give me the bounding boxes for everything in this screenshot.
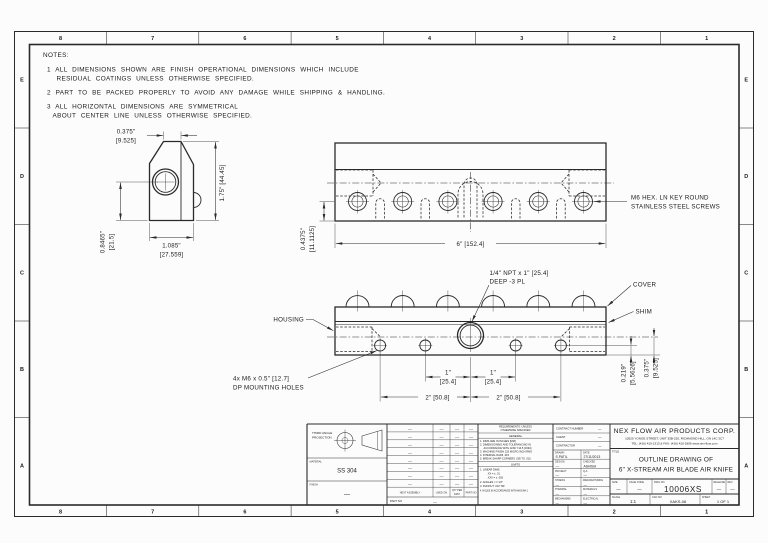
label-housing-group: HOUSING	[273, 317, 333, 331]
manufacturing-label: MANUFACTURING	[583, 479, 603, 482]
zone-row-label: D	[744, 174, 748, 180]
date-label: DATE	[583, 451, 590, 454]
people-grid: DRAWN S.PATIL DATE 27/11/2013 DESIGN — C…	[553, 450, 610, 505]
checked-value: ASHISH	[584, 464, 597, 468]
requirement-item: 3. RUNOUT .010 TIR	[480, 484, 505, 488]
zone-col-label: 6	[243, 36, 246, 42]
material-label: MATERIAL	[310, 461, 323, 464]
requirements-limits-heading: LIMITS	[511, 462, 520, 466]
dim-side-bottom-mm: [27.559]	[160, 252, 184, 259]
npt-inlet	[458, 318, 484, 352]
zone-row-label: C	[744, 271, 748, 277]
drawing-canvas: 8 7 6 5 4 3 2 1 8 7 6 5 4 3 2 1 E D C B …	[0, 0, 768, 543]
company-address: 10520 YONGE STREET, UNIT 35B-220, RICHMO…	[625, 437, 724, 441]
note-3-line-1: 3 ALL HORIZONTAL DIMENSIONS ARE SYMMETRI…	[47, 104, 238, 111]
requirement-item: 1. LINEAR DIMS.	[480, 468, 500, 472]
zone-col-label: 1	[705, 510, 708, 516]
cage-code-label: CAGE CODE	[629, 481, 644, 484]
projection-label-1: THIRD ANGLE	[312, 431, 332, 435]
screw-note-line-1: M6 HEX. LN KEY ROUND	[631, 195, 709, 202]
hidden-center-port	[458, 172, 483, 232]
screw-note: M6 HEX. LN KEY ROUND STAINLESS STEEL SCR…	[594, 195, 720, 211]
dim-a-in: 0.219"	[621, 364, 628, 383]
dim-a-mm: [5.5626]	[630, 361, 637, 385]
note-1-line-1: 1 ALL DIMENSIONS SHOWN ARE FINISH OPERAT…	[47, 67, 359, 74]
sheet-value: 1 OF 1	[717, 499, 730, 504]
dim-side-left-in: 0.8465"	[100, 231, 107, 253]
dim-two-text: 2" [50.8]	[496, 395, 520, 402]
side-view-outline	[150, 142, 194, 221]
mount-note-line-2: DP MOUNTING HOLES	[233, 385, 304, 392]
rev-value: —	[730, 487, 735, 492]
zone-col-label: 8	[59, 510, 62, 516]
requirement-item: 5. BREAK SHARP CORNERS .005 TO .015	[480, 457, 531, 461]
project-label: PROJECT	[555, 470, 567, 473]
front-elevation-view: HOUSING COVER SHIM 1/4" NPT x 1" [25.4] …	[233, 270, 660, 402]
materials-value: —	[584, 492, 588, 496]
application-table: ———————— ———————— ———————— ———————— NEXT…	[387, 424, 478, 504]
mounting-callout: 4x M6 x 0.5" [12.7] DP MOUNTING HOLES	[233, 351, 377, 392]
note-3-line-2: ABOUT CENTER LINE UNLESS OTHERWISE SPECI…	[53, 113, 253, 120]
dim-one-in: 1"	[490, 370, 496, 377]
screw-note-line-2: STAINLESS STEEL SCREWS	[631, 204, 720, 211]
requirements-heading-1: REQUIREMENTS: UNLESS	[499, 425, 532, 429]
zone-col-label: 5	[336, 36, 339, 42]
qa-label: Q.A.	[583, 470, 588, 473]
projection-cell: THIRD ANGLE PROJECTION MATERIAL SS 304 F…	[307, 430, 387, 499]
manufacturing-value: —	[584, 483, 588, 487]
zone-row-label: A	[20, 464, 24, 470]
company-block: NEX FLOW AIR PRODUCTS CORP. 10520 YONGE …	[610, 428, 739, 449]
dim-side-height: 1.75" [44.45]	[183, 142, 226, 221]
dim-side-left-mm: [21.5]	[109, 234, 116, 251]
part-no-value: —	[433, 499, 437, 504]
requirements-general-heading: GENERAL	[509, 434, 523, 438]
requirement-item: 2. DIMENSIONING AND TOLERANCING IN	[480, 443, 531, 447]
dim-screw-offset-in: 0.4375"	[300, 228, 307, 250]
dim-right-small: 0.219" [5.5626] 0.375" [9.525]	[567, 328, 660, 385]
zone-col-label: 3	[520, 510, 523, 516]
drawing-title-line-2: 6" X-STREAM AIR BLADE AIR KNIFE	[619, 467, 733, 474]
application-header-qty-2: ASSY	[454, 493, 461, 496]
contractor-value: —	[598, 444, 602, 448]
application-header-next-assembly: NEXT ASSEMBLY	[400, 492, 421, 495]
checked-label: CHECKED	[583, 461, 595, 464]
requirement-item: 4. HOLES IN ACCORDANCE WITH ANSI B4.1	[480, 490, 529, 493]
contract-number-label: CONTRACT NUMBER	[556, 427, 583, 431]
dim-two-text: 2" [50.8]	[425, 395, 449, 402]
dim-side-top-in: 0.375"	[117, 129, 136, 136]
requirement-item: 1. DIMS ARE IN INCHES [MM]	[480, 439, 516, 443]
side-view-bump	[194, 193, 202, 208]
design-label: DESIGN	[555, 461, 565, 464]
note-1-line-2: RESIDUAL COATINGS UNLESS OTHERWISE SPECI…	[57, 76, 255, 83]
requirement-item: 2. ANGLES = ± 1/2°	[480, 480, 503, 484]
dim-screw-offset: 0.4375" [11.1125]	[300, 202, 334, 253]
application-col3-dashes: ————————	[455, 426, 459, 486]
zone-col-label: 2	[613, 510, 616, 516]
design-value: —	[556, 464, 560, 468]
dwg-no-label: DWG NO	[654, 481, 665, 484]
screw-head-bumps	[346, 291, 595, 312]
screw	[572, 190, 595, 214]
screw	[527, 190, 550, 214]
company-contact: TEL: (416) 410-1313 & FAX: (416) 410-180…	[631, 442, 717, 446]
zone-col-label: 4	[428, 510, 432, 516]
cage-code-value: —	[637, 487, 642, 492]
finish-label: FINISH	[310, 484, 318, 487]
drawing-sheet: 8 7 6 5 4 3 2 1 8 7 6 5 4 3 2 1 E D C B …	[0, 0, 768, 543]
title-label: TITLE	[612, 450, 619, 454]
housing-label: HOUSING	[273, 317, 304, 324]
dim-b-mm: [9.525]	[653, 358, 660, 378]
requirements-block: REQUIREMENTS: UNLESS OTHERWISE SPECIFIED…	[478, 425, 553, 493]
cover-label: COVER	[633, 282, 657, 289]
size-row: SIZE — CAGE CODE — DWG NO 10006XS RELEAS…	[610, 479, 739, 494]
npt-note-line-2: DEEP -3 PL	[490, 279, 526, 286]
mechanisms-label: MECHANISMS	[555, 497, 571, 500]
qa-value: —	[584, 474, 588, 478]
dim-top-width-text: 6" [152.4]	[457, 241, 485, 248]
dim-one-right: 1" [25.4]	[471, 353, 516, 386]
requirement-item: .XX = ± .01	[487, 472, 500, 476]
project-value: —	[556, 474, 560, 478]
finish-value: —	[344, 492, 350, 498]
contract-number-value: —	[598, 427, 602, 431]
stress-label: STRESS	[555, 479, 565, 482]
zone-col-label: 6	[243, 510, 246, 516]
release-value: —	[717, 487, 722, 492]
label-cover-group: COVER	[608, 282, 657, 307]
drawing-title-cell: TITLE OUTLINE DRAWING OF 6" X-STREAM AIR…	[610, 450, 739, 480]
scale-row: SCALE 1:1 CAD NO XAKS-06 SHEET 1 OF 1	[612, 494, 730, 505]
projection-label-2: PROJECTION	[312, 436, 332, 440]
sheet-label: SHEET	[702, 496, 711, 499]
title-block: THIRD ANGLE PROJECTION MATERIAL SS 304 F…	[307, 424, 739, 505]
zone-row-label: B	[744, 367, 748, 373]
shim-label: SHIM	[636, 309, 652, 316]
zone-col-label: 3	[520, 36, 523, 42]
top-plan-view: 6" [152.4] 0.4375" [11.1125] M6 HEX. LN …	[300, 143, 720, 252]
zone-col-label: 4	[428, 36, 432, 42]
thermal-value: —	[556, 492, 560, 496]
application-header-part-no: PART NO	[466, 492, 477, 495]
scale-value: 1:1	[630, 499, 637, 504]
note-2: 2 PART TO BE PACKED PROPERLY TO AVOID AN…	[47, 90, 385, 97]
requirement-item: 3. MACHINE FINISH 125 MICRO INCH RMS	[480, 450, 532, 454]
dim-side-top-mm: [9.525]	[116, 138, 136, 145]
screw	[391, 190, 414, 214]
mount-note-line-1: 4x M6 x 0.5" [12.7]	[233, 376, 289, 383]
drawing-title-line-1: OUTLINE DRAWING OF	[639, 457, 713, 464]
dim-one-mm: [25.4]	[485, 379, 502, 386]
requirements-heading-2: OTHERWISE SPECIFIED	[500, 428, 530, 432]
client-label: CLIENT	[556, 435, 566, 439]
dim-side-bottom: 1.085" [27.559]	[150, 223, 194, 259]
zone-row-label: E	[20, 78, 24, 84]
zone-row-label: D	[20, 174, 24, 180]
rev-label: REV	[728, 481, 733, 484]
client-value: —	[598, 436, 602, 440]
screw	[482, 190, 505, 214]
zone-col-label: 2	[613, 36, 616, 42]
zone-row-label: A	[744, 464, 748, 470]
zone-col-label: 1	[705, 36, 708, 42]
application-col4-dashes: ————————	[469, 426, 473, 486]
notes-block: NOTES: 1 ALL DIMENSIONS SHOWN ARE FINISH…	[43, 52, 385, 120]
zone-row-label: C	[20, 271, 24, 277]
zone-col-label: 5	[336, 510, 339, 516]
cad-no-label: CAD NO	[652, 496, 662, 499]
cad-no-value: XAKS-06	[670, 499, 687, 504]
requirement-item: 4. INTERNAL RADII .015	[480, 453, 510, 457]
label-shim-group: SHIM	[609, 309, 652, 323]
size-label: SIZE	[612, 481, 618, 484]
size-value: —	[616, 487, 621, 492]
dim-screw-offset-mm: [11.1125]	[309, 226, 316, 252]
electrical-label: ELECTRICAL	[583, 497, 599, 500]
requirement-item: .XXX = ± .005	[487, 476, 504, 480]
scale-label: SCALE	[612, 496, 621, 499]
company-name: NEX FLOW AIR PRODUCTS CORP.	[614, 428, 736, 435]
application-header-used-on: USED ON	[436, 492, 448, 495]
zone-col-label: 7	[151, 510, 154, 516]
zone-row-label: E	[744, 78, 748, 84]
application-col2-dashes: ————————	[440, 426, 444, 486]
release-label: RELEASE	[714, 481, 726, 484]
application-col1-dashes: ————————	[408, 426, 412, 486]
contract-block: CONTRACT NUMBER — CLIENT — CONTRACTOR —	[553, 427, 610, 451]
drawn-label: DRAWN	[555, 451, 565, 454]
stress-value: —	[556, 483, 560, 487]
zone-col-label: 8	[59, 36, 62, 42]
date-value: 27/11/2013	[584, 455, 601, 459]
npt-note-line-1: 1/4" NPT x 1" [25.4]	[490, 270, 549, 277]
dim-one-mm: [25.4]	[440, 379, 457, 386]
requirement-item: ACCORDANCE WITH ANSI Y14.5 [1994]	[484, 446, 532, 450]
dwg-no-value: 10006XS	[664, 485, 702, 494]
dim-b-in: 0.375"	[644, 359, 651, 378]
screw	[346, 190, 369, 214]
contractor-label: CONTRACTOR	[556, 444, 575, 448]
zone-col-label: 7	[151, 36, 154, 42]
thermal-label: THERMAL	[555, 488, 568, 491]
dim-side-bottom-in: 1.085"	[162, 243, 181, 250]
materials-label: MATERIALS	[583, 488, 597, 491]
dim-one-in: 1"	[445, 370, 451, 377]
notes-heading: NOTES:	[43, 52, 69, 59]
application-header-qty-1: QTY PER	[452, 490, 462, 492]
dim-side-height-text: 1.75" [44.45]	[219, 164, 226, 201]
third-angle-projection-icon	[334, 430, 382, 452]
screw	[436, 190, 459, 214]
side-profile-view: 0.375" [9.525] 1.75" [44.45] 0.8465" [21…	[100, 129, 227, 259]
material-value: SS 304	[337, 469, 357, 475]
dim-side-top: 0.375" [9.525]	[116, 129, 197, 145]
part-no-label: PART NO	[390, 499, 403, 503]
drawn-value: S.PATIL	[556, 455, 568, 459]
zone-row-label: B	[20, 367, 24, 373]
